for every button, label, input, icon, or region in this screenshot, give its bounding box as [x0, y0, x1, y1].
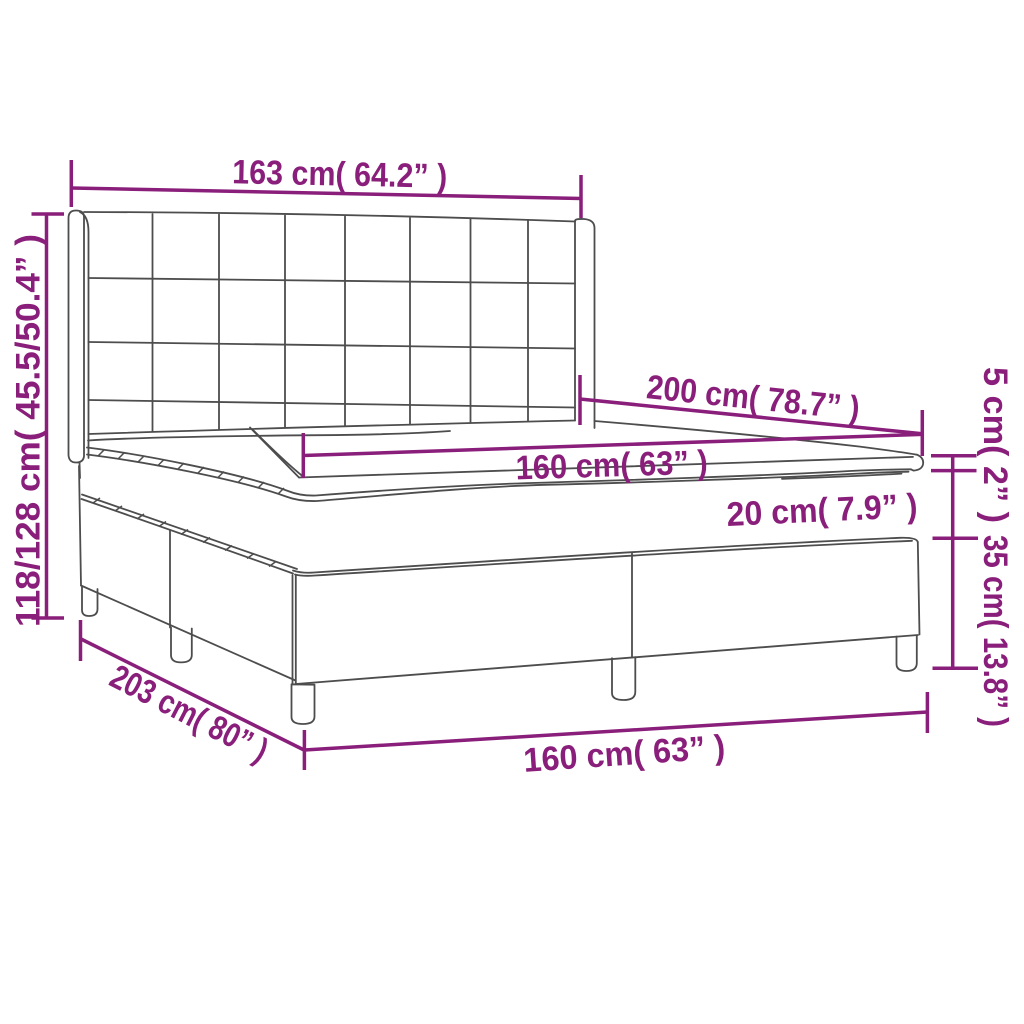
svg-text:203 cm( 80” ): 203 cm( 80” ): [104, 658, 274, 770]
svg-text:163 cm( 64.2” ): 163 cm( 64.2” ): [232, 153, 448, 195]
svg-text:160 cm( 63” ): 160 cm( 63” ): [515, 444, 708, 488]
svg-text:118/128 cm( 45.5/50.4” ): 118/128 cm( 45.5/50.4” ): [10, 234, 48, 627]
svg-text:20 cm( 7.9” ): 20 cm( 7.9” ): [726, 487, 919, 534]
svg-text:5 cm( 2” ): 5 cm( 2” ): [976, 367, 1014, 523]
svg-text:200 cm( 78.7” ): 200 cm( 78.7” ): [645, 368, 862, 428]
svg-text:35 cm( 13.8” ): 35 cm( 13.8” ): [976, 535, 1014, 727]
